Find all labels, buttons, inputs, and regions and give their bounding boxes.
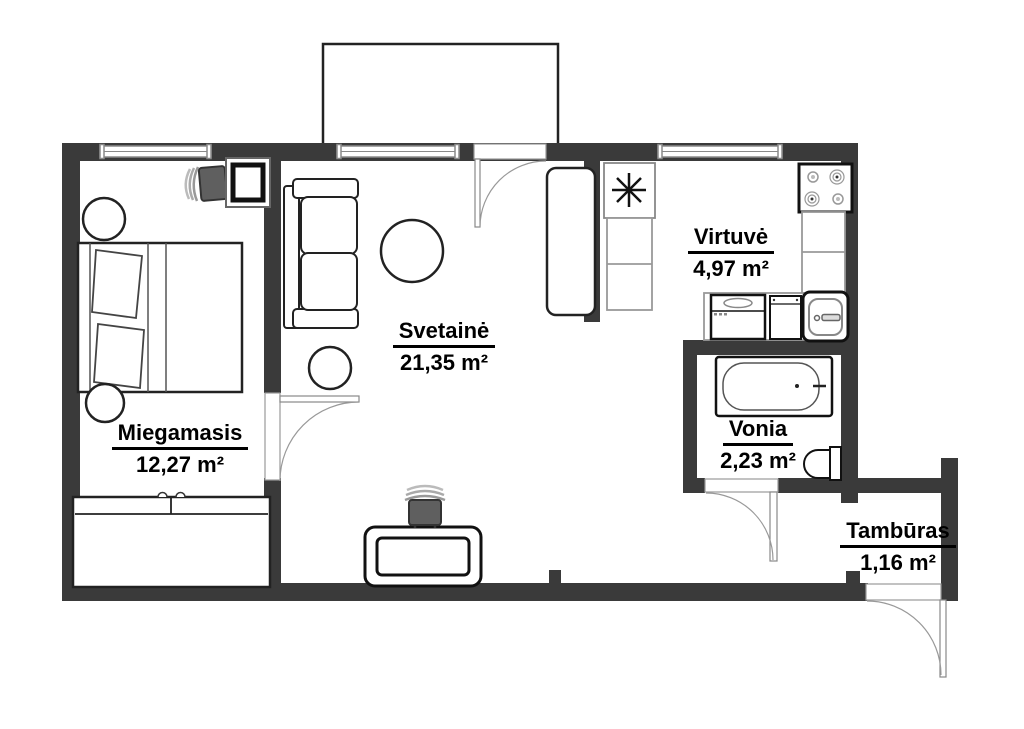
wardrobe <box>73 493 270 588</box>
bed <box>78 243 242 392</box>
room-label-vestibule: Tambūras 1,16 m² <box>818 518 978 576</box>
kitchen-cabinet-small <box>770 296 801 339</box>
room-label-living: Svetainė 21,35 m² <box>364 318 524 376</box>
tall-cabinet <box>547 168 595 315</box>
room-name-vestibule: Tambūras <box>840 518 956 548</box>
bedroom-door <box>265 393 359 481</box>
round-table-small <box>309 347 351 389</box>
floorplan: Miegamasis 12,27 m² Svetainė 21,35 m² Vi… <box>0 0 1024 729</box>
bathtub <box>716 357 832 416</box>
washing-machine <box>711 295 765 339</box>
room-area-living: 21,35 m² <box>364 350 524 376</box>
desk <box>365 527 481 586</box>
room-label-bedroom: Miegamasis 12,27 m² <box>100 420 260 478</box>
bedside-table <box>83 198 125 240</box>
bedroom-window <box>100 145 211 159</box>
room-name-bathroom: Vonia <box>723 416 793 446</box>
balcony-door <box>474 144 546 227</box>
bedroom-chair <box>186 166 228 201</box>
room-name-bedroom: Miegamasis <box>112 420 249 450</box>
balcony-outline <box>323 44 558 143</box>
room-area-vestibule: 1,16 m² <box>818 550 978 576</box>
tv-stand <box>226 158 270 207</box>
entrance-door <box>866 584 946 677</box>
room-area-bathroom: 2,23 m² <box>678 448 838 474</box>
kitchen-sink <box>803 292 848 341</box>
bathroom-door <box>705 479 778 561</box>
room-name-kitchen: Virtuvė <box>688 224 774 254</box>
room-area-kitchen: 4,97 m² <box>651 256 811 282</box>
room-label-kitchen: Virtuvė 4,97 m² <box>651 224 811 282</box>
sofa <box>284 179 358 328</box>
kitchen-cabinet-left <box>607 218 652 310</box>
stove <box>799 164 852 212</box>
refrigerator <box>604 163 655 218</box>
desk-chair <box>405 486 445 528</box>
bedside-table <box>86 384 124 422</box>
round-table <box>381 220 443 282</box>
living-window <box>337 145 459 159</box>
room-label-bathroom: Vonia 2,23 m² <box>678 416 838 474</box>
kitchen-window <box>658 145 782 159</box>
room-area-bedroom: 12,27 m² <box>100 452 260 478</box>
room-name-living: Svetainė <box>393 318 496 348</box>
